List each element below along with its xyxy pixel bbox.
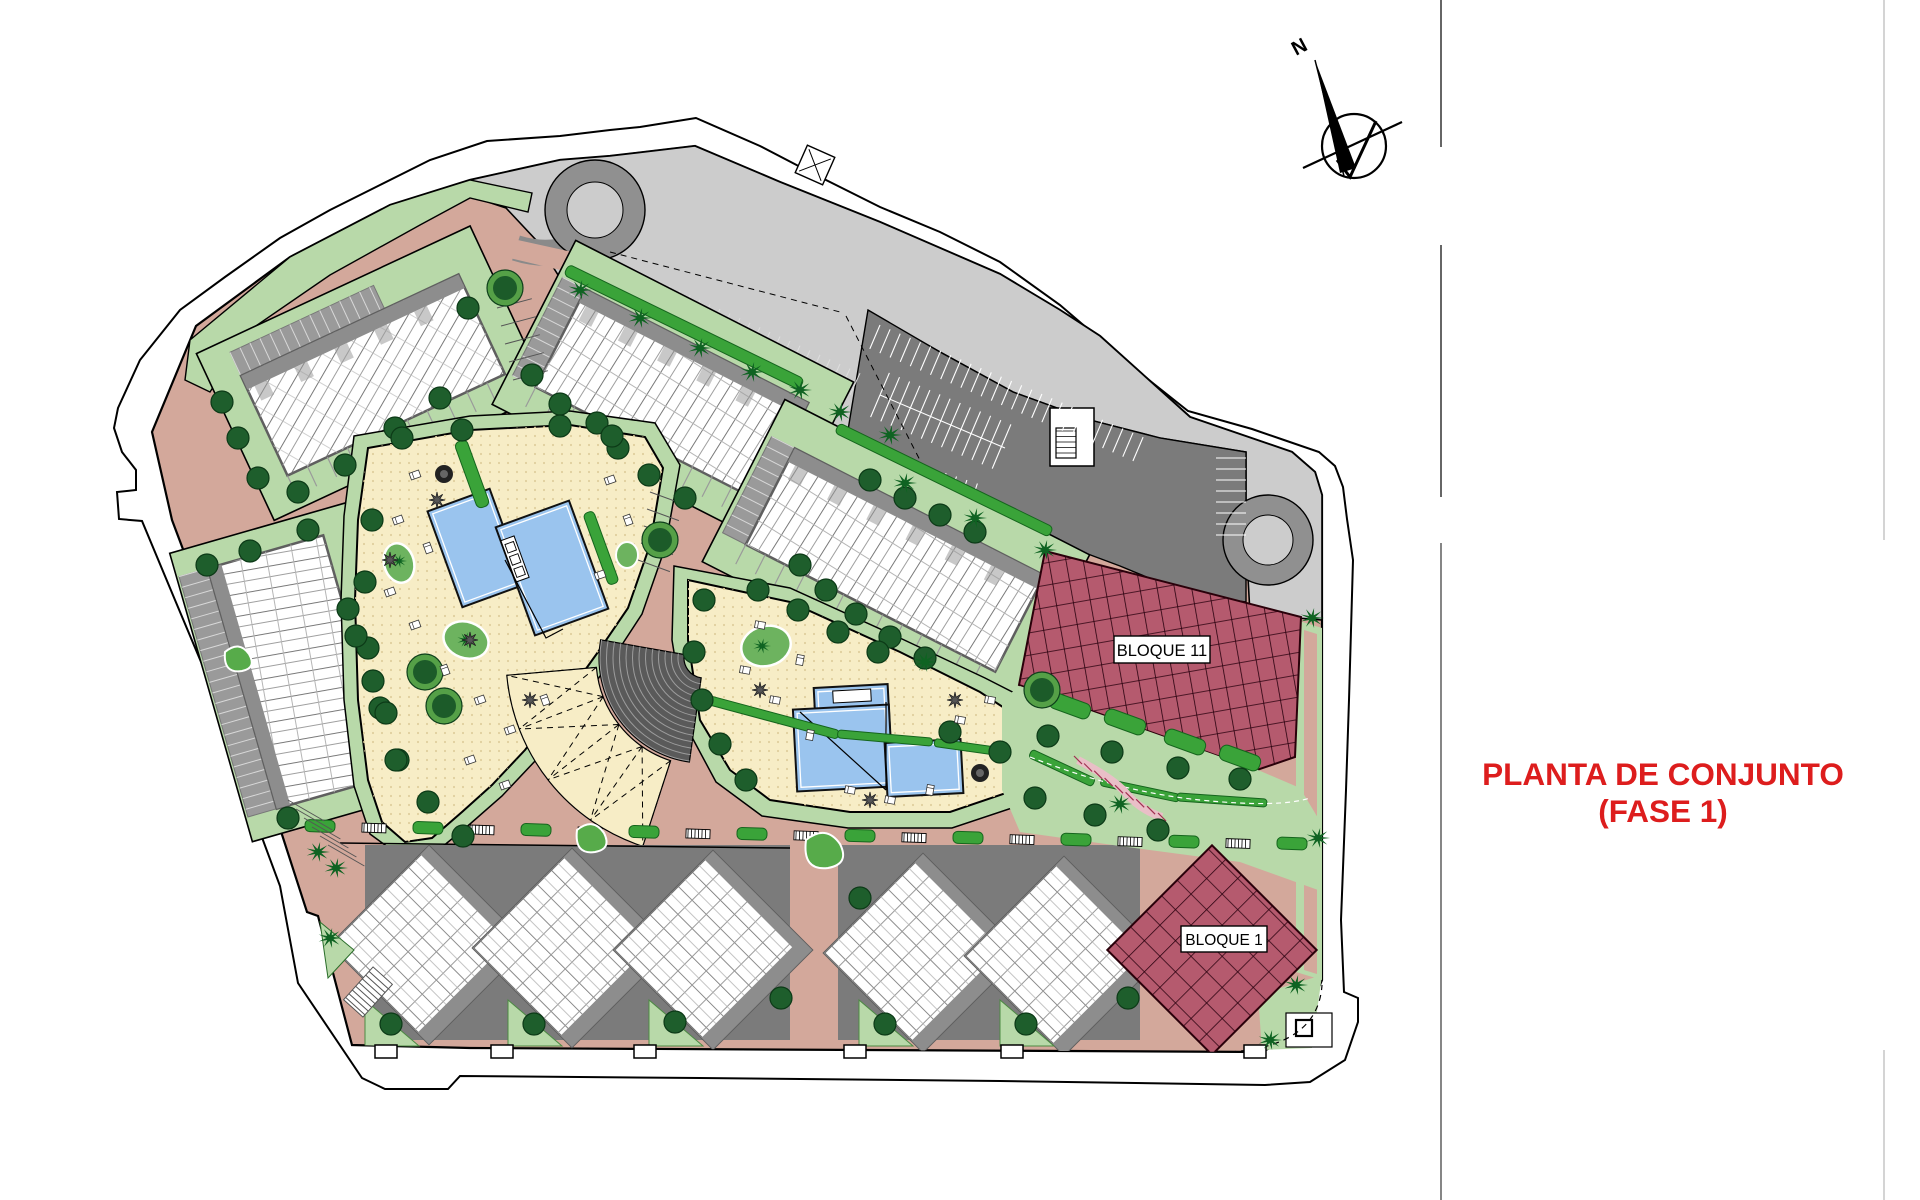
- svg-text:BLOQUE 11: BLOQUE 11: [1117, 642, 1207, 660]
- svg-text:BLOQUE 1: BLOQUE 1: [1185, 932, 1263, 949]
- svg-text:N: N: [1288, 34, 1311, 60]
- svg-text:(FASE 1): (FASE 1): [1598, 793, 1728, 829]
- svg-text:PLANTA DE CONJUNTO: PLANTA DE CONJUNTO: [1482, 756, 1844, 792]
